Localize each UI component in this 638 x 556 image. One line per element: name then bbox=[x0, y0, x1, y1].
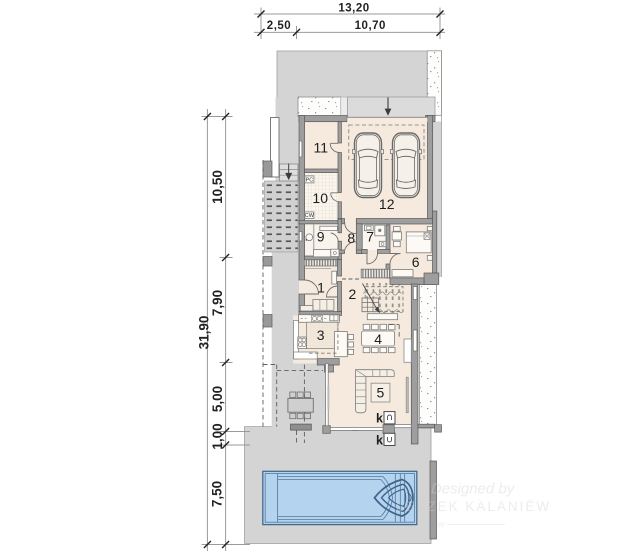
svg-text:PC: PC bbox=[306, 177, 314, 183]
svg-text:7,90: 7,90 bbox=[210, 290, 225, 316]
svg-text:10: 10 bbox=[312, 190, 328, 206]
svg-text:Designed by: Designed by bbox=[431, 481, 516, 498]
svg-text:9: 9 bbox=[317, 229, 325, 245]
svg-text:6: 6 bbox=[412, 254, 420, 270]
svg-text:10,50: 10,50 bbox=[210, 170, 225, 204]
svg-text:k: k bbox=[376, 434, 383, 448]
svg-text:8: 8 bbox=[347, 230, 355, 246]
svg-text:7,50: 7,50 bbox=[210, 481, 225, 507]
svg-text:3: 3 bbox=[317, 327, 325, 343]
svg-text:13,20: 13,20 bbox=[338, 3, 369, 15]
svg-text:2,50: 2,50 bbox=[267, 20, 291, 32]
svg-text:1: 1 bbox=[317, 280, 325, 296]
svg-text:5: 5 bbox=[377, 385, 385, 401]
svg-text:4: 4 bbox=[374, 331, 382, 347]
svg-text:CW: CW bbox=[305, 213, 315, 219]
svg-text:31,90: 31,90 bbox=[196, 316, 211, 350]
svg-text:7: 7 bbox=[366, 229, 374, 245]
svg-text:k: k bbox=[376, 412, 383, 426]
svg-text:w: w bbox=[438, 519, 445, 529]
svg-text:1,00: 1,00 bbox=[210, 423, 225, 449]
svg-text:LESZEK KALANIÉW: LESZEK KALANIÉW bbox=[396, 499, 551, 514]
svg-text:11: 11 bbox=[314, 140, 329, 156]
svg-text:5,00: 5,00 bbox=[210, 386, 225, 412]
svg-text:12: 12 bbox=[379, 196, 395, 212]
svg-text:2: 2 bbox=[349, 286, 357, 302]
svg-text:10,70: 10,70 bbox=[355, 20, 386, 32]
